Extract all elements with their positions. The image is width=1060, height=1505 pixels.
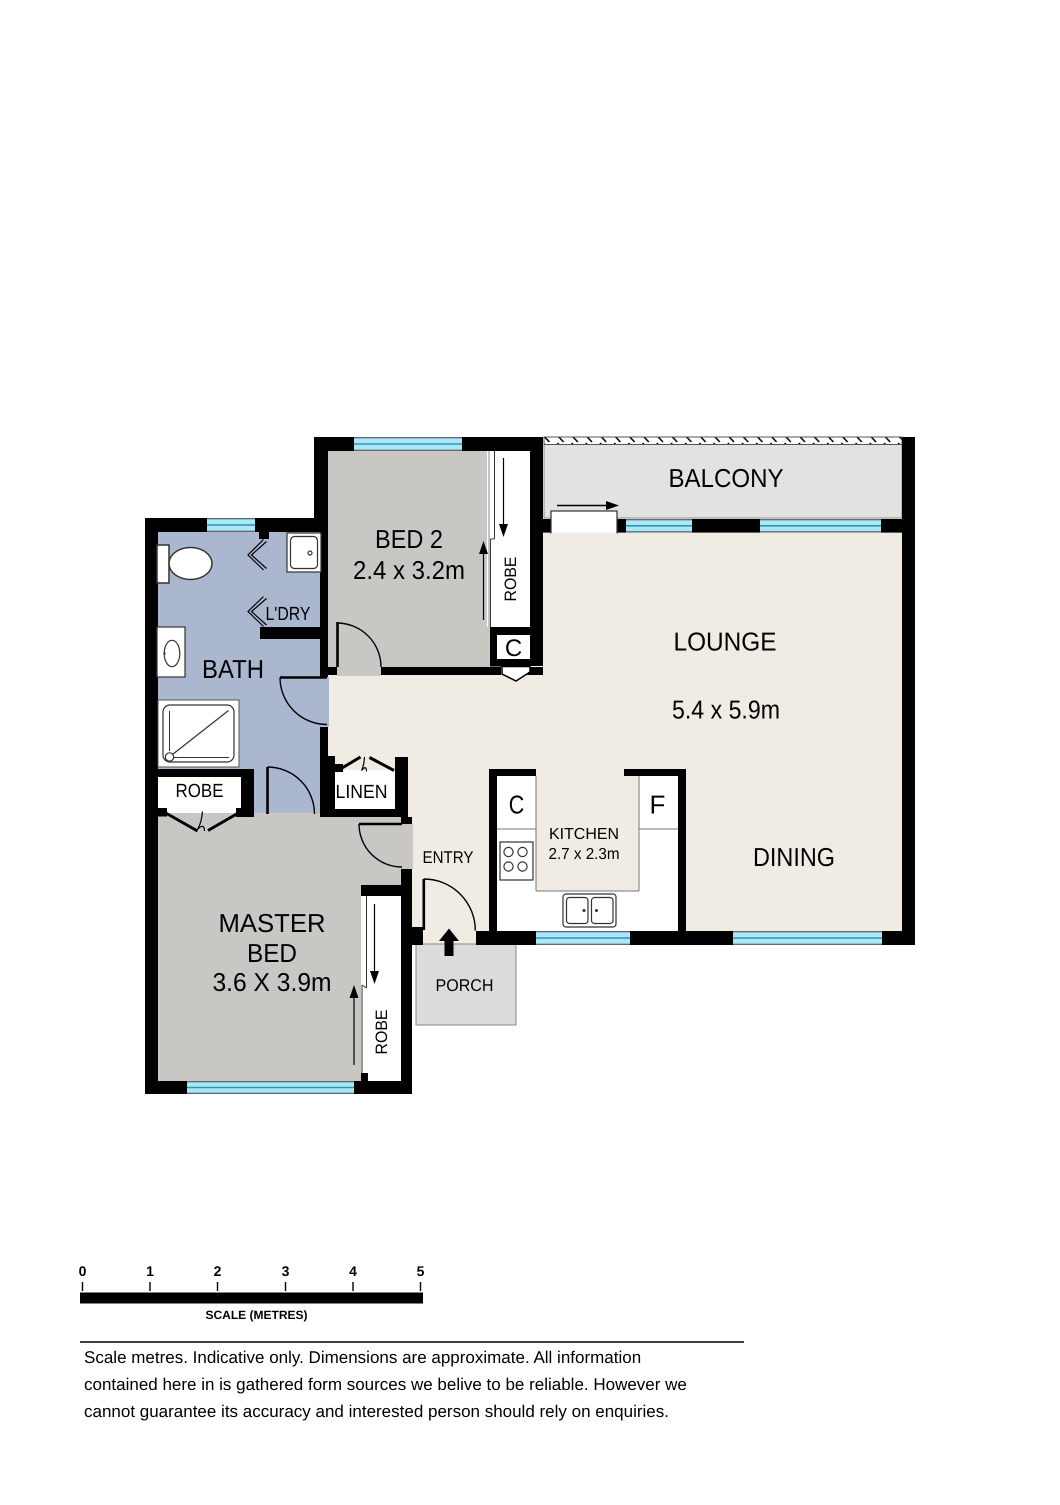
- svg-text:2.4 x 3.2m: 2.4 x 3.2m: [353, 555, 465, 585]
- svg-text:5: 5: [417, 1263, 425, 1279]
- svg-text:C: C: [505, 635, 522, 662]
- svg-text:ROBE: ROBE: [502, 557, 520, 602]
- svg-text:C: C: [509, 790, 525, 820]
- svg-text:BATH: BATH: [202, 654, 264, 684]
- svg-text:cannot guarantee its accuracy: cannot guarantee its accuracy and intere…: [84, 1402, 669, 1421]
- svg-text:3: 3: [282, 1263, 290, 1279]
- svg-text:F: F: [650, 790, 666, 820]
- svg-text:MASTER: MASTER: [219, 908, 326, 938]
- svg-text:contained here in is gathered: contained here in is gathered form sourc…: [84, 1375, 687, 1394]
- svg-text:ROBE: ROBE: [176, 781, 224, 802]
- svg-text:LOUNGE: LOUNGE: [674, 627, 777, 657]
- svg-text:4: 4: [349, 1263, 357, 1279]
- svg-text:BED 2: BED 2: [375, 524, 443, 554]
- svg-text:0: 0: [79, 1263, 87, 1279]
- svg-text:5.4 x 5.9m: 5.4 x 5.9m: [672, 695, 780, 725]
- svg-text:2.7 x 2.3m: 2.7 x 2.3m: [549, 846, 620, 863]
- svg-text:BALCONY: BALCONY: [669, 463, 784, 493]
- svg-text:BED: BED: [247, 938, 297, 968]
- svg-text:KITCHEN: KITCHEN: [549, 826, 619, 843]
- svg-text:ROBE: ROBE: [373, 1010, 391, 1055]
- svg-text:L'DRY: L'DRY: [266, 604, 311, 625]
- svg-text:ENTRY: ENTRY: [423, 848, 474, 867]
- svg-text:Scale metres. Indicative only.: Scale metres. Indicative only. Dimension…: [84, 1348, 641, 1367]
- svg-text:DINING: DINING: [753, 842, 835, 872]
- svg-text:2: 2: [214, 1263, 222, 1279]
- svg-text:SCALE (METRES): SCALE (METRES): [206, 1308, 308, 1322]
- svg-text:LINEN: LINEN: [336, 782, 388, 803]
- svg-text:3.6 X 3.9m: 3.6 X 3.9m: [213, 967, 332, 997]
- svg-text:1: 1: [146, 1263, 154, 1279]
- svg-text:PORCH: PORCH: [436, 976, 494, 995]
